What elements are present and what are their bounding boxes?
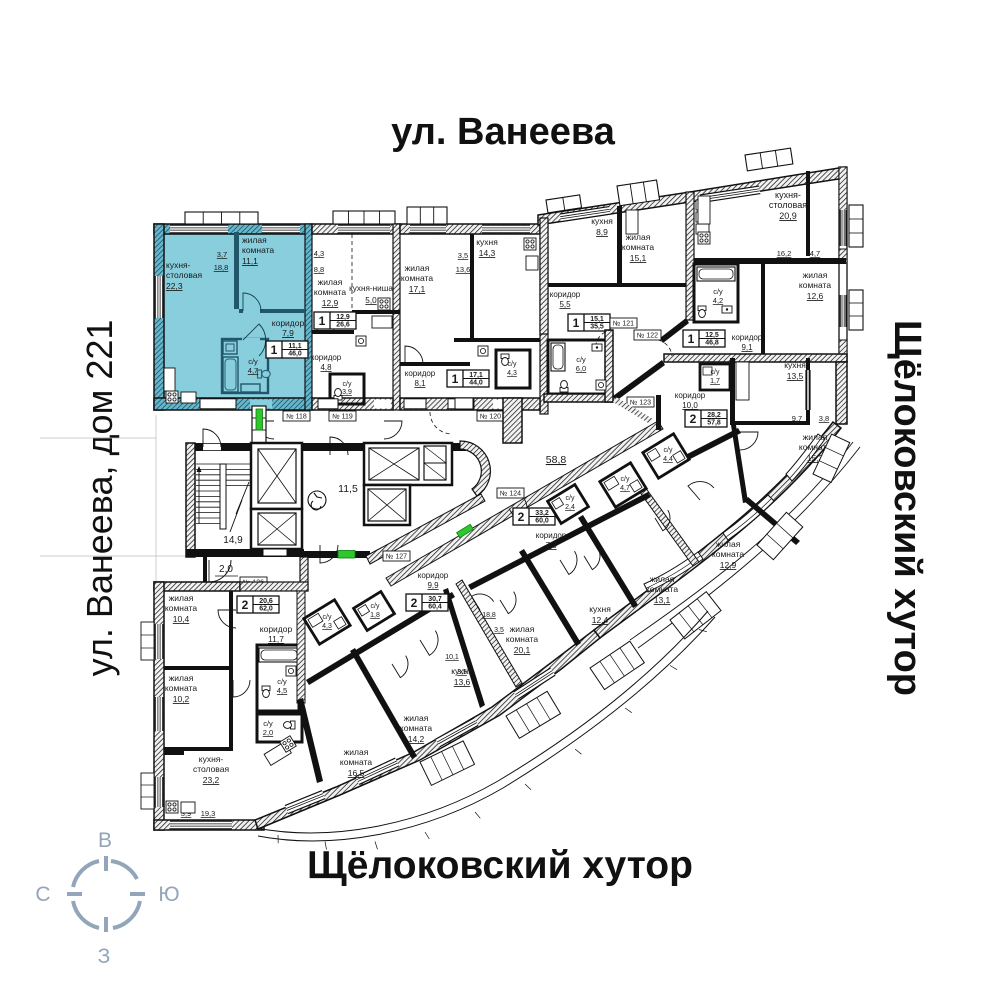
svg-text:с/у: с/у <box>323 614 332 621</box>
svg-text:18,8: 18,8 <box>214 263 229 272</box>
svg-text:9,1: 9,1 <box>741 343 753 352</box>
svg-text:28,2: 28,2 <box>707 412 721 419</box>
svg-text:12,9: 12,9 <box>720 560 737 570</box>
svg-text:№ 119: № 119 <box>332 414 353 421</box>
svg-text:7,9: 7,9 <box>282 328 294 338</box>
svg-text:12,6: 12,6 <box>807 291 824 301</box>
svg-text:12,9: 12,9 <box>336 314 350 321</box>
svg-text:4,8: 4,8 <box>320 363 332 372</box>
svg-text:№ 127: № 127 <box>386 554 407 561</box>
svg-text:столовая: столовая <box>769 200 807 210</box>
svg-text:3,5: 3,5 <box>457 669 467 676</box>
svg-text:46,0: 46,0 <box>288 351 302 358</box>
svg-text:комната: комната <box>646 584 678 594</box>
svg-text:60,0: 60,0 <box>535 518 549 525</box>
svg-text:жилая: жилая <box>318 277 343 287</box>
svg-text:11,1: 11,1 <box>242 256 258 266</box>
svg-text:18,8: 18,8 <box>482 612 496 619</box>
svg-text:с/у: с/у <box>277 677 287 686</box>
svg-text:1: 1 <box>573 316 580 330</box>
svg-text:1,8: 1,8 <box>370 612 380 619</box>
svg-text:12,4: 12,4 <box>592 615 609 625</box>
svg-text:с/у: с/у <box>343 381 352 388</box>
svg-text:комната: комната <box>622 242 654 252</box>
svg-text:8,1: 8,1 <box>414 379 426 388</box>
svg-text:4,4: 4,4 <box>663 456 673 463</box>
svg-text:коридор: коридор <box>418 571 449 580</box>
svg-text:1: 1 <box>688 332 695 346</box>
svg-text:10,0: 10,0 <box>682 401 698 410</box>
svg-text:коридор: коридор <box>675 391 706 400</box>
svg-text:с/у: с/у <box>621 476 630 483</box>
svg-text:1: 1 <box>452 372 459 386</box>
svg-text:кухня-: кухня- <box>166 260 191 270</box>
svg-text:В: В <box>98 829 112 852</box>
svg-text:4,3: 4,3 <box>322 623 332 630</box>
svg-text:коридор: коридор <box>272 318 305 328</box>
svg-text:5,0: 5,0 <box>365 296 377 305</box>
svg-text:комната: комната <box>340 757 372 767</box>
svg-text:кухня: кухня <box>784 360 806 370</box>
svg-text:10,4: 10,4 <box>173 614 190 624</box>
svg-text:9,7: 9,7 <box>792 414 802 423</box>
svg-text:Щёлоковский хутор: Щёлоковский хутор <box>307 844 693 887</box>
svg-text:с/у: с/у <box>566 495 575 502</box>
svg-text:жилая: жилая <box>344 747 369 757</box>
svg-text:4,3: 4,3 <box>507 370 517 377</box>
svg-text:1,7: 1,7 <box>710 378 720 385</box>
svg-text:6,0: 6,0 <box>576 364 586 373</box>
svg-text:2: 2 <box>518 510 525 524</box>
svg-text:жилая: жилая <box>803 432 828 442</box>
svg-text:35,5: 35,5 <box>590 324 604 331</box>
svg-text:с/у: с/у <box>248 357 258 366</box>
svg-text:14,2: 14,2 <box>408 734 425 744</box>
svg-text:19,3: 19,3 <box>201 809 216 818</box>
svg-text:2: 2 <box>411 596 418 610</box>
svg-text:13,1: 13,1 <box>654 595 671 605</box>
svg-text:1: 1 <box>319 314 326 328</box>
svg-text:кухня: кухня <box>589 604 611 614</box>
svg-text:10,1: 10,1 <box>445 654 459 661</box>
svg-text:17,1: 17,1 <box>409 284 426 294</box>
svg-text:ул. Ванеева, дом 221: ул. Ванеева, дом 221 <box>79 320 120 677</box>
svg-text:30,7: 30,7 <box>428 596 442 603</box>
svg-text:3,5: 3,5 <box>494 627 504 634</box>
svg-text:№ 121: № 121 <box>613 321 634 328</box>
svg-text:11,7: 11,7 <box>268 634 284 644</box>
svg-text:15,1: 15,1 <box>630 253 647 263</box>
svg-text:10,2: 10,2 <box>173 694 190 704</box>
svg-text:13,5: 13,5 <box>787 371 804 381</box>
svg-text:кухня-: кухня- <box>199 754 224 764</box>
svg-text:жилая: жилая <box>405 263 430 273</box>
svg-text:4,7: 4,7 <box>810 249 820 258</box>
svg-text:коридор: коридор <box>405 369 436 378</box>
svg-text:4,7: 4,7 <box>248 366 258 375</box>
svg-text:коридор: коридор <box>550 290 581 299</box>
svg-text:12,5: 12,5 <box>705 332 719 339</box>
svg-text:коридор: коридор <box>260 624 293 634</box>
svg-text:58,8: 58,8 <box>546 454 567 466</box>
svg-text:16,5: 16,5 <box>348 768 365 778</box>
svg-text:комната: комната <box>242 245 274 255</box>
svg-text:столовая: столовая <box>193 764 230 774</box>
svg-text:3,9: 3,9 <box>342 389 352 396</box>
svg-text:4,2: 4,2 <box>713 296 723 305</box>
svg-text:жилая: жилая <box>650 574 675 584</box>
svg-text:кухня: кухня <box>591 216 613 226</box>
svg-text:комната: комната <box>799 280 831 290</box>
svg-text:11,1: 11,1 <box>288 343 301 350</box>
svg-text:13,6: 13,6 <box>456 265 471 274</box>
svg-text:З: З <box>98 945 111 968</box>
svg-text:жилая: жилая <box>169 593 194 603</box>
svg-text:1: 1 <box>271 343 278 357</box>
svg-text:2: 2 <box>242 598 249 612</box>
svg-text:с/у: с/у <box>371 603 380 610</box>
svg-text:2,4: 2,4 <box>565 504 575 511</box>
svg-text:жилая: жилая <box>169 673 194 683</box>
svg-text:с/у: с/у <box>713 287 723 296</box>
svg-text:62,0: 62,0 <box>259 606 273 613</box>
svg-text:с/у: с/у <box>263 719 273 728</box>
svg-text:коридор: коридор <box>732 333 763 342</box>
svg-text:20,9: 20,9 <box>779 211 797 221</box>
svg-text:7,3: 7,3 <box>545 541 557 550</box>
svg-text:Щёлоковский хутор: Щёлоковский хутор <box>886 320 928 696</box>
svg-text:2,0: 2,0 <box>263 728 273 737</box>
svg-text:4,7: 4,7 <box>620 485 630 492</box>
svg-text:№ 123: № 123 <box>630 400 651 407</box>
svg-text:14,9: 14,9 <box>223 535 243 546</box>
svg-text:комната: комната <box>712 549 744 559</box>
svg-text:жилая: жилая <box>716 539 741 549</box>
svg-text:57,8: 57,8 <box>707 420 721 427</box>
svg-text:26,6: 26,6 <box>336 322 350 329</box>
svg-text:жилая: жилая <box>510 624 535 634</box>
svg-text:комната: комната <box>401 273 433 283</box>
svg-text:№ 124: № 124 <box>500 491 521 498</box>
svg-text:С: С <box>35 883 50 906</box>
svg-text:12,9: 12,9 <box>322 298 339 308</box>
svg-text:20,6: 20,6 <box>259 598 273 605</box>
svg-text:жилая: жилая <box>242 235 267 245</box>
svg-text:комната: комната <box>314 287 346 297</box>
svg-text:с/у: с/у <box>576 355 586 364</box>
svg-text:9,9: 9,9 <box>427 581 439 590</box>
svg-text:столовая: столовая <box>166 270 203 280</box>
svg-text:коридор: коридор <box>311 353 342 362</box>
svg-text:с/у: с/у <box>711 369 720 376</box>
svg-text:13,6: 13,6 <box>454 677 471 687</box>
svg-text:2: 2 <box>690 412 697 426</box>
svg-text:11,5: 11,5 <box>338 483 358 495</box>
svg-text:17,1: 17,1 <box>469 372 483 379</box>
svg-text:3,7: 3,7 <box>217 250 227 259</box>
svg-text:23,2: 23,2 <box>203 775 220 785</box>
svg-text:с/у: с/у <box>664 447 673 454</box>
svg-text:3,8: 3,8 <box>819 414 829 423</box>
svg-text:№ 122: № 122 <box>637 333 658 340</box>
svg-text:16,2: 16,2 <box>777 249 792 258</box>
svg-text:кухня: кухня <box>476 237 498 247</box>
svg-text:22,3: 22,3 <box>166 281 183 291</box>
svg-text:46,8: 46,8 <box>705 340 719 347</box>
svg-text:комната: комната <box>506 634 538 644</box>
svg-text:33,2: 33,2 <box>535 510 549 517</box>
svg-text:4,3: 4,3 <box>314 249 324 258</box>
svg-text:жилая: жилая <box>803 270 828 280</box>
svg-text:кухня-ниша: кухня-ниша <box>349 284 393 293</box>
svg-text:кухня-: кухня- <box>775 190 801 200</box>
svg-text:14,3: 14,3 <box>479 248 496 258</box>
svg-text:4,5: 4,5 <box>277 686 287 695</box>
svg-text:комната: комната <box>400 723 432 733</box>
svg-text:60,4: 60,4 <box>428 604 442 611</box>
svg-text:коридор: коридор <box>536 531 567 540</box>
svg-text:8,8: 8,8 <box>314 265 324 274</box>
svg-text:с/у: с/у <box>508 361 517 368</box>
svg-text:15,1: 15,1 <box>590 316 604 323</box>
svg-text:3,5: 3,5 <box>458 251 468 260</box>
svg-text:комната: комната <box>165 603 197 613</box>
svg-text:№ 118: № 118 <box>286 414 307 421</box>
svg-text:Ю: Ю <box>158 883 179 906</box>
svg-text:ул. Ванеева: ул. Ванеева <box>391 111 616 153</box>
svg-text:5,5: 5,5 <box>559 300 571 309</box>
svg-text:44,0: 44,0 <box>469 380 483 387</box>
svg-text:8,9: 8,9 <box>596 227 608 237</box>
svg-text:жилая: жилая <box>404 713 429 723</box>
svg-text:комната: комната <box>165 683 197 693</box>
svg-text:№ 120: № 120 <box>480 414 501 421</box>
svg-text:20,1: 20,1 <box>514 645 531 655</box>
